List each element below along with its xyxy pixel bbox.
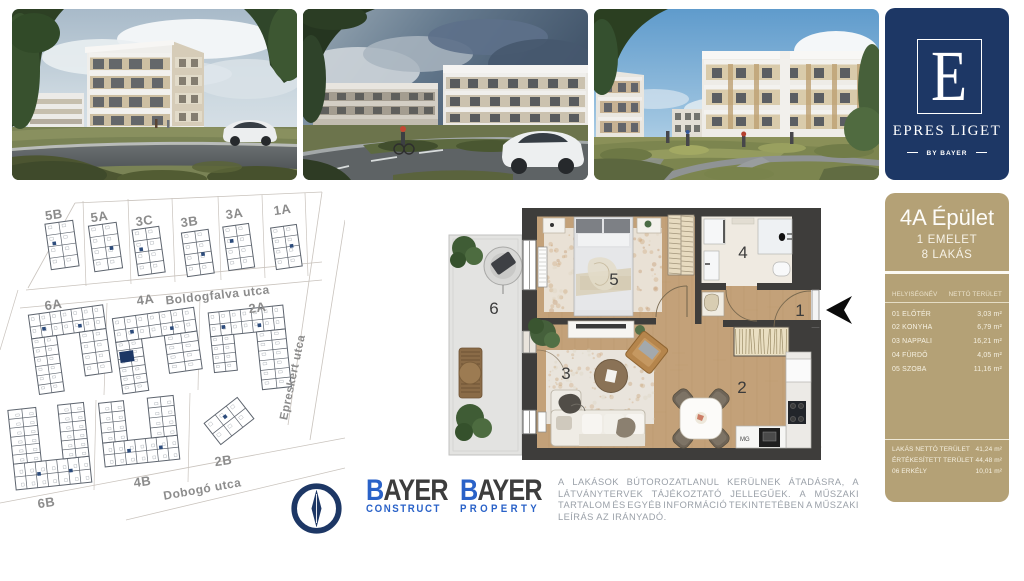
svg-text:5A: 5A	[90, 208, 110, 225]
svg-text:4A: 4A	[136, 291, 156, 308]
svg-text:3B: 3B	[180, 213, 200, 230]
svg-text:5B: 5B	[44, 206, 64, 223]
svg-text:6B: 6B	[37, 494, 57, 511]
svg-text:2A: 2A	[248, 299, 268, 316]
svg-text:4B: 4B	[133, 473, 153, 490]
svg-text:6: 6	[489, 299, 498, 318]
svg-text:5: 5	[609, 270, 618, 289]
svg-text:2B: 2B	[214, 452, 234, 469]
svg-text:1A: 1A	[273, 201, 293, 218]
svg-text:4: 4	[738, 243, 747, 262]
svg-text:3A: 3A	[225, 205, 245, 222]
svg-text:2: 2	[737, 378, 746, 397]
svg-text:1: 1	[795, 301, 804, 320]
svg-text:MG: MG	[740, 437, 750, 443]
svg-text:6A: 6A	[44, 296, 64, 313]
svg-text:3: 3	[561, 364, 570, 383]
svg-text:Dobogó utca: Dobogó utca	[162, 475, 242, 502]
svg-text:3C: 3C	[135, 212, 155, 229]
